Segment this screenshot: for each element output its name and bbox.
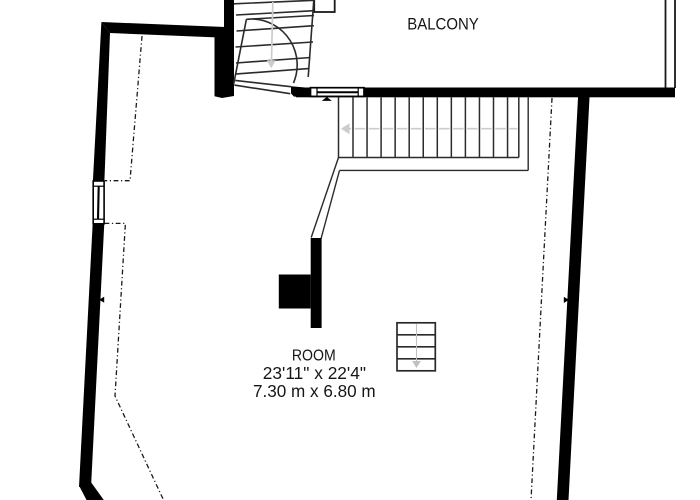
svg-text:7.30 m x 6.80 m: 7.30 m x 6.80 m bbox=[253, 381, 376, 401]
svg-text:BALCONY: BALCONY bbox=[407, 16, 479, 34]
svg-text:23'11" x 22'4": 23'11" x 22'4" bbox=[263, 363, 366, 383]
